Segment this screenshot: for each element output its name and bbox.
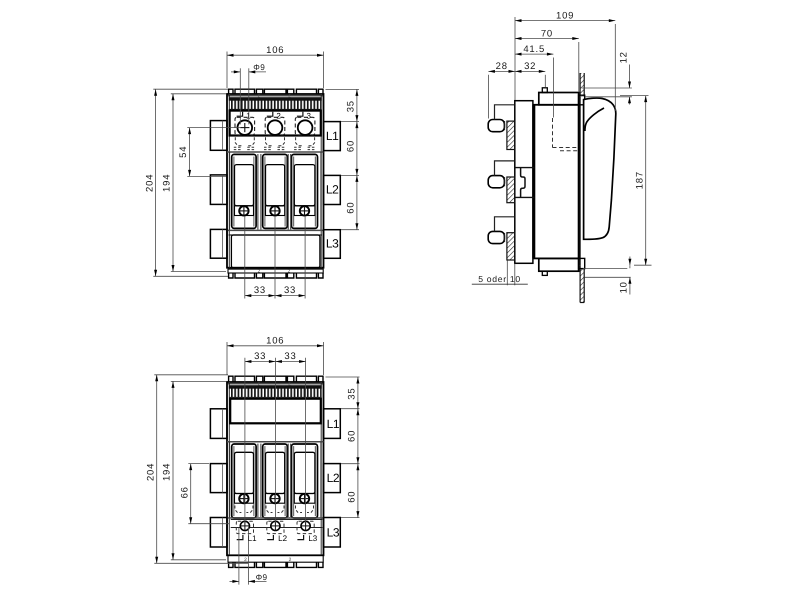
svg-text:60: 60: [345, 202, 356, 214]
svg-text:10: 10: [619, 281, 630, 293]
svg-text:L3: L3: [327, 525, 340, 539]
svg-text:33: 33: [284, 285, 296, 296]
svg-text:194: 194: [162, 463, 173, 481]
svg-text:66: 66: [179, 486, 190, 498]
svg-text:32: 32: [524, 61, 536, 72]
svg-text:Φ9: Φ9: [256, 573, 268, 582]
svg-text:L3: L3: [308, 534, 317, 543]
svg-text:2: 2: [289, 557, 292, 563]
svg-text:41.5: 41.5: [523, 44, 545, 55]
svg-text:L1: L1: [327, 417, 340, 431]
svg-text:2: 2: [276, 111, 281, 120]
svg-text:33: 33: [254, 351, 266, 362]
svg-text:5 oder 10: 5 oder 10: [478, 274, 521, 284]
svg-text:35: 35: [345, 100, 356, 112]
svg-text:33: 33: [284, 351, 296, 362]
svg-text:204: 204: [145, 463, 156, 481]
svg-text:2: 2: [258, 269, 261, 275]
svg-text:2: 2: [258, 93, 261, 99]
svg-text:204: 204: [144, 174, 155, 192]
svg-text:12: 12: [618, 51, 629, 63]
svg-text:60: 60: [346, 491, 357, 503]
svg-text:2: 2: [244, 557, 247, 563]
svg-text:187: 187: [634, 171, 645, 189]
svg-text:L2: L2: [326, 183, 339, 197]
svg-text:2: 2: [288, 269, 291, 275]
svg-text:33: 33: [254, 285, 266, 296]
svg-text:54: 54: [178, 146, 189, 158]
svg-text:28: 28: [496, 61, 508, 72]
svg-text:70: 70: [541, 28, 553, 39]
svg-text:L2: L2: [278, 534, 287, 543]
svg-text:L2: L2: [327, 471, 340, 485]
svg-text:L3: L3: [326, 237, 339, 251]
svg-text:106: 106: [266, 45, 284, 56]
svg-text:3: 3: [306, 111, 311, 120]
svg-text:2: 2: [288, 381, 291, 387]
svg-text:60: 60: [345, 140, 356, 152]
svg-text:2: 2: [288, 93, 291, 99]
svg-text:35: 35: [346, 388, 357, 400]
svg-text:106: 106: [266, 336, 284, 347]
svg-text:2: 2: [258, 381, 261, 387]
svg-text:L1: L1: [248, 534, 257, 543]
svg-text:194: 194: [162, 174, 173, 192]
svg-text:Φ9: Φ9: [253, 63, 265, 72]
svg-text:109: 109: [556, 10, 574, 21]
svg-text:L1: L1: [326, 129, 339, 143]
svg-text:60: 60: [346, 430, 357, 442]
